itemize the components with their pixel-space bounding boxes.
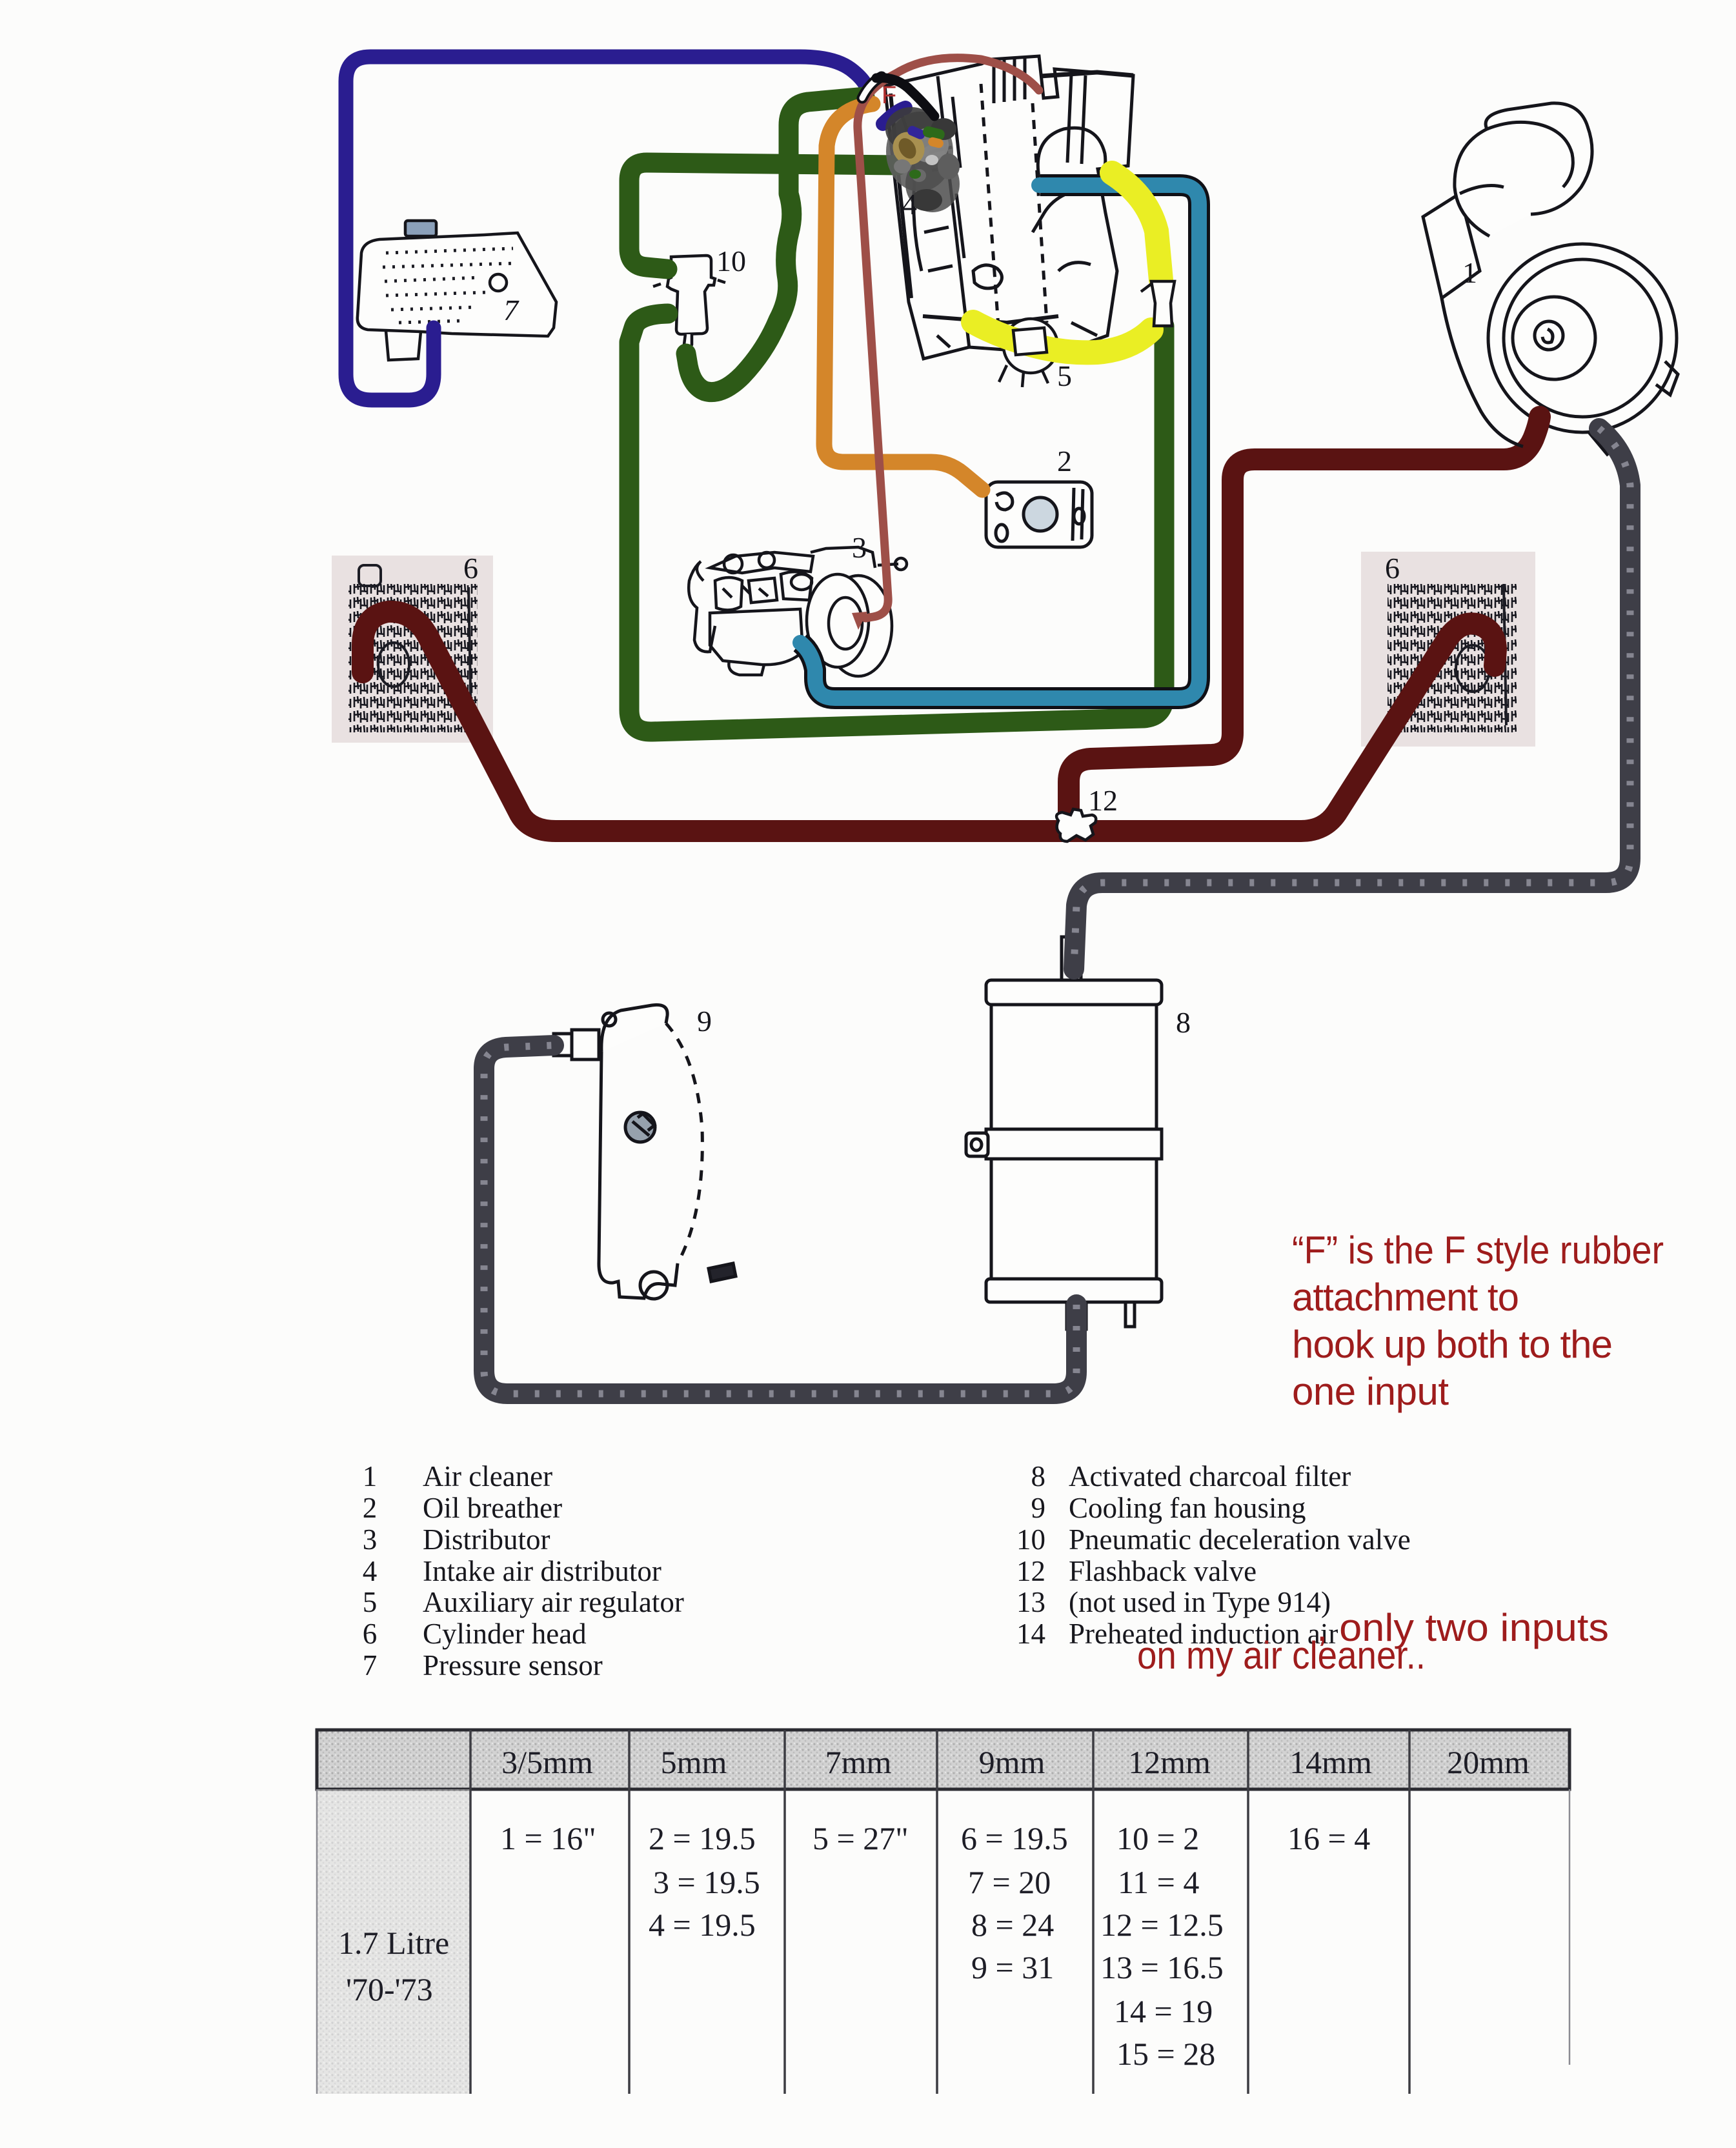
svg-text:Intake air distributor: Intake air distributor: [423, 1555, 661, 1587]
svg-text:10: 10: [1016, 1523, 1045, 1556]
svg-text:Pneumatic deceleration valve: Pneumatic deceleration valve: [1069, 1523, 1411, 1556]
svg-text:9: 9: [697, 1005, 712, 1038]
svg-text:11 = 4: 11 = 4: [1118, 1864, 1199, 1900]
svg-text:4 = 19.5: 4 = 19.5: [649, 1907, 756, 1943]
svg-text:Air cleaner: Air cleaner: [423, 1460, 552, 1492]
svg-text:“F” is the F style rubber: “F” is the F style rubber: [1292, 1229, 1664, 1272]
svg-text:12: 12: [1088, 784, 1118, 817]
svg-text:2 = 19.5: 2 = 19.5: [649, 1820, 756, 1856]
svg-text:15 = 28: 15 = 28: [1116, 2036, 1215, 2072]
svg-text:9 = 31: 9 = 31: [971, 1949, 1054, 1985]
svg-text:6: 6: [363, 1618, 378, 1650]
svg-text:F: F: [882, 82, 896, 109]
svg-text:Flashback valve: Flashback valve: [1069, 1555, 1257, 1587]
svg-text:5: 5: [1057, 359, 1072, 392]
svg-text:7: 7: [363, 1649, 378, 1681]
svg-text:Distributor: Distributor: [423, 1523, 550, 1556]
svg-text:14 = 19: 14 = 19: [1114, 1993, 1213, 2029]
svg-text:13 = 16.5: 13 = 16.5: [1100, 1949, 1224, 1985]
svg-text:Auxiliary air regulator: Auxiliary air regulator: [423, 1586, 684, 1618]
svg-text:16 = 4: 16 = 4: [1287, 1820, 1370, 1856]
svg-text:12 = 12.5: 12 = 12.5: [1100, 1907, 1224, 1943]
svg-text:9mm: 9mm: [979, 1744, 1045, 1780]
svg-text:6 = 19.5: 6 = 19.5: [961, 1820, 1068, 1856]
svg-text:Cylinder head: Cylinder head: [423, 1618, 587, 1650]
svg-text:1: 1: [363, 1460, 378, 1492]
svg-text:3/5mm: 3/5mm: [501, 1744, 593, 1780]
svg-text:Activated charcoal filter: Activated charcoal filter: [1069, 1460, 1351, 1492]
svg-text:10 = 2: 10 = 2: [1116, 1820, 1199, 1856]
svg-text:6: 6: [463, 552, 478, 585]
svg-text:attachment to: attachment to: [1292, 1276, 1519, 1319]
svg-text:4: 4: [902, 188, 917, 221]
svg-text:2: 2: [363, 1492, 378, 1524]
svg-text:12mm: 12mm: [1128, 1744, 1211, 1780]
svg-text:8 = 24: 8 = 24: [971, 1907, 1054, 1943]
svg-text:1 = 16": 1 = 16": [500, 1820, 596, 1856]
svg-text:10: 10: [716, 245, 746, 277]
svg-text:5mm: 5mm: [661, 1744, 727, 1780]
svg-text:6: 6: [1385, 552, 1400, 585]
svg-text:4: 4: [363, 1555, 378, 1587]
svg-text:(not used in Type 914): (not used in Type 914): [1069, 1586, 1331, 1618]
svg-text:Pressure sensor: Pressure sensor: [423, 1649, 603, 1681]
svg-text:Oil breather: Oil breather: [423, 1492, 562, 1524]
svg-text:14: 14: [1016, 1618, 1045, 1650]
svg-text:20mm: 20mm: [1447, 1744, 1529, 1780]
svg-text:9: 9: [1031, 1492, 1046, 1524]
svg-text:12: 12: [1016, 1555, 1045, 1587]
svg-text:5: 5: [363, 1586, 378, 1618]
svg-text:7mm: 7mm: [825, 1744, 892, 1780]
svg-text:1.7 Litre: 1.7 Litre: [338, 1925, 449, 1961]
svg-text:Cooling fan housing: Cooling fan housing: [1069, 1492, 1306, 1524]
svg-text:3 = 19.5: 3 = 19.5: [653, 1864, 760, 1900]
svg-text:on my air cleaner..: on my air cleaner..: [1137, 1634, 1426, 1677]
svg-text:5 = 27": 5 = 27": [812, 1820, 909, 1856]
svg-text:14mm: 14mm: [1289, 1744, 1372, 1780]
svg-text:1: 1: [1462, 256, 1477, 289]
svg-text:8: 8: [1176, 1006, 1191, 1039]
svg-text:7: 7: [503, 294, 520, 326]
svg-text:3: 3: [363, 1523, 378, 1556]
svg-text:hook up both to the: hook up both to the: [1292, 1323, 1613, 1366]
svg-text:7 = 20: 7 = 20: [968, 1864, 1051, 1900]
svg-text:2: 2: [1057, 445, 1072, 477]
svg-text:one input: one input: [1292, 1370, 1449, 1413]
svg-text:13: 13: [1016, 1586, 1045, 1618]
svg-text:8: 8: [1031, 1460, 1046, 1492]
svg-text:'70-'73: '70-'73: [346, 1971, 433, 2007]
svg-text:3: 3: [852, 531, 867, 564]
